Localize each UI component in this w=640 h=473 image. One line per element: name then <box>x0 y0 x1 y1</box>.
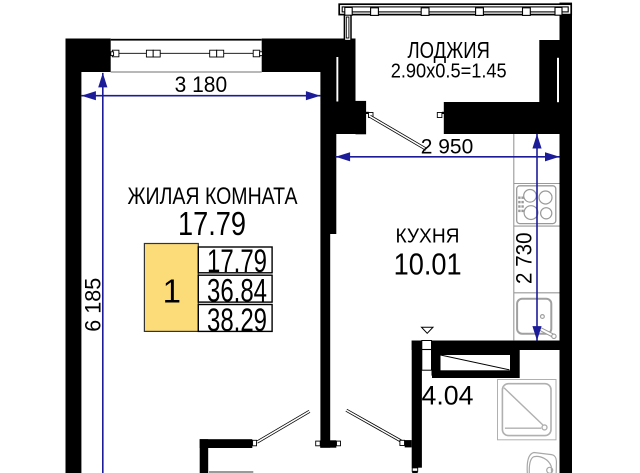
svg-text:3 180: 3 180 <box>175 72 228 97</box>
svg-text:2.90x0.5=1.45: 2.90x0.5=1.45 <box>391 61 507 83</box>
svg-text:17.79: 17.79 <box>178 205 246 242</box>
svg-text:10.01: 10.01 <box>394 247 462 282</box>
svg-text:1: 1 <box>163 272 181 309</box>
svg-text:2 730: 2 730 <box>512 232 537 284</box>
svg-text:2 950: 2 950 <box>421 136 474 159</box>
svg-text:ЛОДЖИЯ: ЛОДЖИЯ <box>407 37 490 63</box>
svg-text:38.29: 38.29 <box>207 302 267 338</box>
svg-text:6 185: 6 185 <box>80 278 105 332</box>
svg-text:КУХНЯ: КУХНЯ <box>396 225 460 247</box>
svg-text:4.04: 4.04 <box>422 380 474 410</box>
